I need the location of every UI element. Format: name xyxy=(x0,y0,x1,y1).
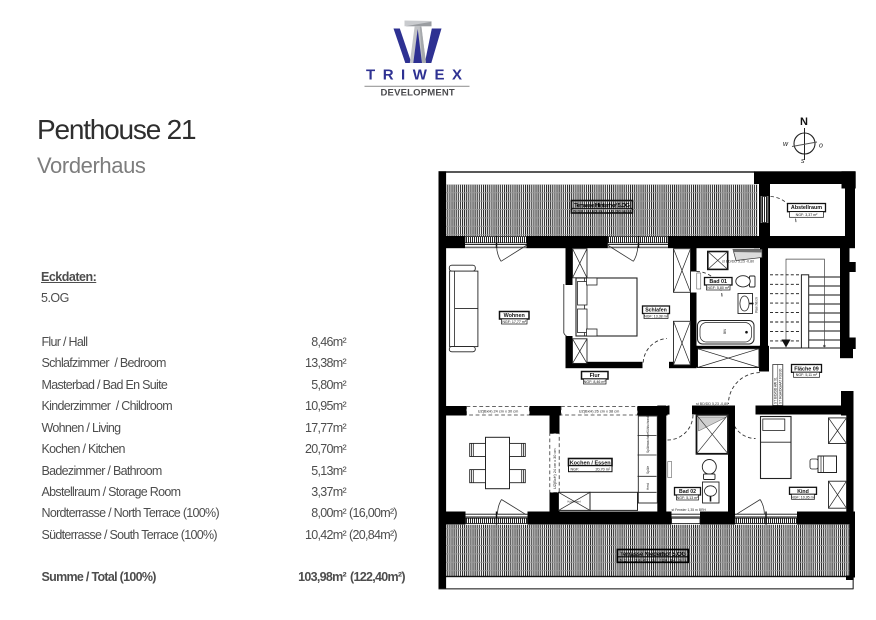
svg-text:Terrasse Hinterhof 5.OG: Terrasse Hinterhof 5.OG xyxy=(574,203,630,209)
svg-text:NGF: 8,46 m²: NGF: 8,46 m² xyxy=(584,380,607,384)
svg-text:w: w xyxy=(783,141,789,148)
svg-text:Bad 01: Bad 01 xyxy=(709,279,727,285)
svg-text:st BD/DD 5,25 -0,80: st BD/DD 5,25 -0,80 xyxy=(722,260,754,264)
svg-text:Wohnen: Wohnen xyxy=(504,313,525,319)
svg-text:NGF: 5,80 m²: NGF: 5,80 m² xyxy=(707,286,730,290)
svg-text:ST B/D/DD AW 01: ST B/D/DD AW 01 xyxy=(774,377,778,404)
svg-text:st BD/DD 5,23 -0,80: st BD/DD 5,23 -0,80 xyxy=(696,402,728,406)
svg-text:NGF: 8,00 m² (16,00 m²: NGF: 8,00 m² (16,00 m²) xyxy=(574,209,630,213)
svg-text:Kind: Kind xyxy=(797,489,809,495)
svg-text:ST RGA/DGAAT F90/30: ST RGA/DGAAT F90/30 xyxy=(779,368,783,404)
svg-text:Bad 02: Bad 02 xyxy=(679,489,696,495)
svg-text:Abstellraum: Abstellraum xyxy=(791,205,822,211)
svg-text:Herd: Herd xyxy=(646,483,650,490)
svg-text:UZ(BxH) 24 cm x 30 cm: UZ(BxH) 24 cm x 30 cm xyxy=(553,448,557,489)
svg-text:Spüle: Spüle xyxy=(646,466,650,474)
svg-text:Schlafen: Schlafen xyxy=(645,308,667,314)
svg-text:UZ(BxH) 26 cm x 38 cm: UZ(BxH) 26 cm x 38 cm xyxy=(579,409,620,413)
svg-text:Kochinsel: Kochinsel xyxy=(567,500,580,504)
svg-text:Fläche 09: Fläche 09 xyxy=(794,366,819,372)
svg-text:NGF: 10,95 m²: NGF: 10,95 m² xyxy=(791,495,816,499)
svg-text:o: o xyxy=(819,143,823,150)
svg-text:BW: BW xyxy=(723,329,727,334)
svg-text:NGF: 13,38 m²: NGF: 13,38 m² xyxy=(644,315,669,319)
svg-text:NGF: 10,42 m² (20,84 m²): NGF: 10,42 m² (20,84 m²) xyxy=(620,558,687,563)
svg-text:Flur: Flur xyxy=(590,373,601,379)
svg-text:st Fenster 1,35 m BRH: st Fenster 1,35 m BRH xyxy=(672,508,707,512)
svg-text:TRIWEX: TRIWEX xyxy=(366,67,468,84)
svg-text:NGF: 5,13 m²: NGF: 5,13 m² xyxy=(677,496,700,500)
svg-text:NGF: 3,37 m²: NGF: 3,37 m² xyxy=(796,213,819,217)
svg-text:Waschtisch: Waschtisch xyxy=(755,297,759,313)
svg-text:s: s xyxy=(801,158,805,165)
svg-text:Spülmaschine: Spülmaschine xyxy=(646,433,650,453)
svg-text:NGF: 5,11 m²: NGF: 5,11 m² xyxy=(796,373,818,377)
svg-text:NGF:: NGF: xyxy=(571,467,580,471)
svg-text:N: N xyxy=(800,116,808,128)
svg-text:DEVELOPMENT: DEVELOPMENT xyxy=(381,87,457,98)
svg-text:NGF: 17,77 m²: NGF: 17,77 m² xyxy=(502,320,527,324)
svg-text:UZ(BxH) 24 cm x 30 cm: UZ(BxH) 24 cm x 30 cm xyxy=(478,409,519,413)
svg-text:20,70 m²: 20,70 m² xyxy=(595,467,610,471)
svg-text:Kühlschrank: Kühlschrank xyxy=(646,415,650,433)
